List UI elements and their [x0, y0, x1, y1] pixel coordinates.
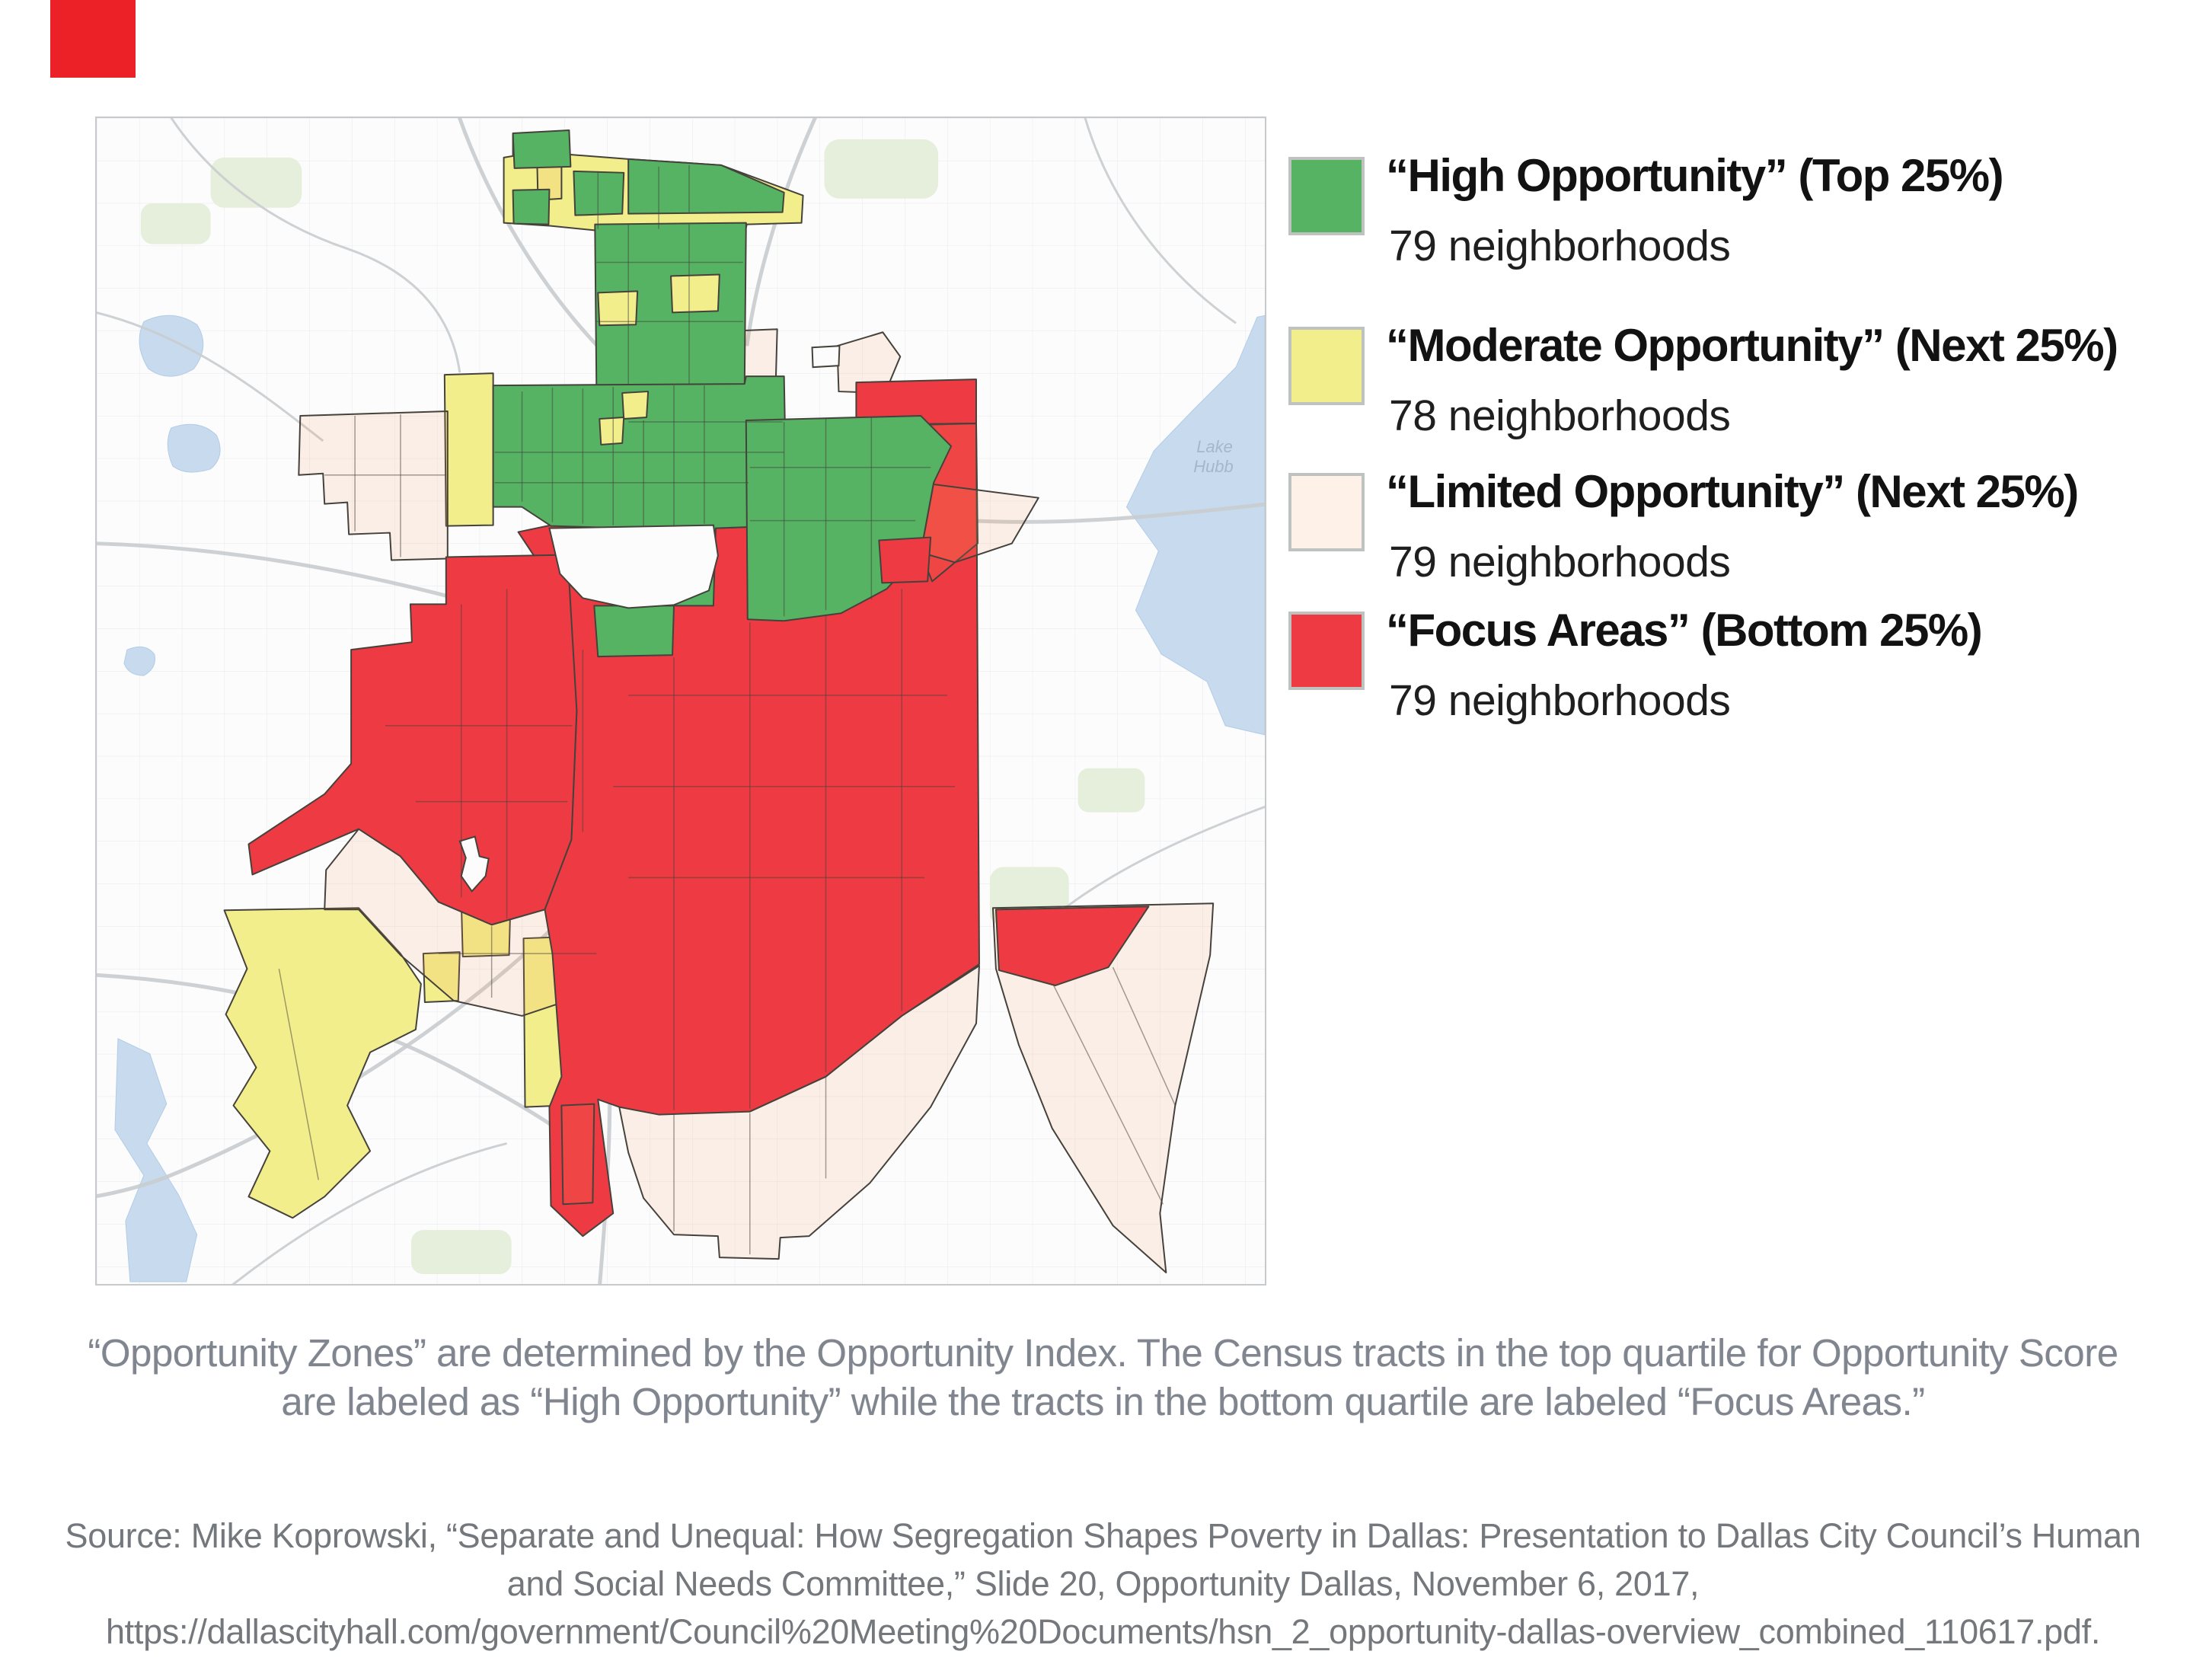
legend-count-limited: 79 neighborhoods: [1389, 537, 2074, 587]
source-citation: Source: Mike Koprowski, “Separate and Un…: [0, 1512, 2206, 1656]
map-canvas: Lake Hubb: [97, 118, 1265, 1284]
legend-title-moderate: “Moderate Opportunity” (Next 25%): [1386, 319, 2201, 372]
lake-label-line1: Lake: [1196, 437, 1233, 456]
source-line3: https://dallascityhall.com/government/Co…: [0, 1608, 2206, 1656]
legend-swatch-high: [1288, 157, 1365, 235]
map-caption: “Opportunity Zones” are determined by th…: [0, 1329, 2206, 1426]
legend-title-focus: “Focus Areas” (Bottom 25%): [1386, 604, 2201, 656]
caption-line2: are labeled as “High Opportunity” while …: [0, 1378, 2206, 1426]
legend-swatch-limited: [1288, 473, 1365, 551]
legend-swatch-focus: [1288, 612, 1365, 690]
source-line2: and Social Needs Committee,” Slide 20, O…: [0, 1560, 2206, 1608]
legend-swatch-moderate: [1288, 327, 1365, 405]
source-line1: Source: Mike Koprowski, “Separate and Un…: [0, 1512, 2206, 1560]
dallas-opportunity-map: Lake Hubb: [95, 117, 1266, 1286]
legend-count-high: 79 neighborhoods: [1389, 221, 2074, 271]
legend-title-limited: “Limited Opportunity” (Next 25%): [1386, 465, 2201, 518]
slide: { "corner_mark": { "color": "#ec2127" },…: [0, 0, 2206, 1680]
legend-title-high: “High Opportunity” (Top 25%): [1386, 149, 2201, 202]
corner-accent-mark: [50, 0, 136, 78]
legend-count-moderate: 78 neighborhoods: [1389, 391, 2074, 441]
lake-label-line2: Hubb: [1193, 457, 1233, 476]
caption-line1: “Opportunity Zones” are determined by th…: [0, 1329, 2206, 1378]
legend-count-focus: 79 neighborhoods: [1389, 676, 2074, 726]
